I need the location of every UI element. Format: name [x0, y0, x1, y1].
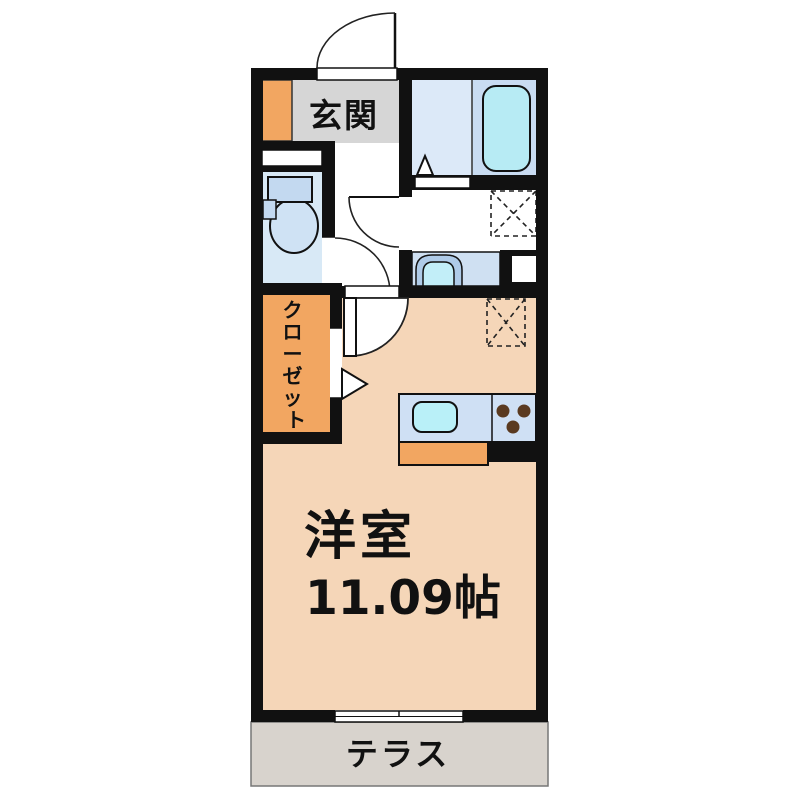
pipe-space: [512, 256, 536, 282]
washbasin-bowl: [423, 262, 454, 286]
toilet-window: [262, 150, 322, 166]
wall-closet-bottom: [251, 432, 342, 444]
entrance-door-swing: [317, 13, 395, 68]
toilet-flush-box: [263, 200, 276, 219]
washing-machine-space: [491, 191, 536, 236]
terrace-window: [335, 711, 463, 722]
bathtub: [483, 86, 530, 171]
washroom-doorway: [399, 197, 412, 250]
terrace-label: テラス: [346, 735, 450, 773]
wall-top-right: [397, 68, 548, 80]
room-door-leaf: [344, 298, 356, 356]
bath-wash-floor: [412, 80, 472, 175]
closet-opening: [330, 328, 342, 398]
bath-door-threshold: [415, 177, 470, 188]
shoe-cabinet: [262, 80, 292, 141]
washroom-door-swing: [349, 197, 399, 247]
kitchen-sink: [413, 402, 457, 432]
floorplan-svg: 玄関 ク ロ ー ゼ ッ ト 洋室 11.09帖 テラス: [0, 0, 800, 800]
toilet-tank: [268, 177, 312, 202]
kitchen-cabinet: [399, 442, 488, 465]
room-door-threshold: [345, 286, 399, 298]
wall-bottom-right: [463, 710, 548, 722]
floorplan-page: 玄関 ク ロ ー ゼ ッ ト 洋室 11.09帖 テラス: [0, 0, 800, 800]
entrance-door-sill: [317, 68, 397, 80]
entrance-label: 玄関: [309, 96, 379, 135]
closet-label: ク ロ ー ゼ ッ ト: [283, 298, 310, 432]
kitchen-side-wall: [488, 442, 536, 462]
wall-hall-washroom: [399, 68, 412, 298]
wall-toilet-closet: [251, 283, 342, 295]
room-size-label: 11.09帖: [305, 571, 501, 626]
wall-right: [536, 68, 548, 722]
toilet-bowl: [270, 199, 318, 253]
toilet-door-swing: [335, 238, 390, 293]
room-name-label: 洋室: [304, 507, 416, 567]
wall-bottom-left: [251, 710, 335, 722]
